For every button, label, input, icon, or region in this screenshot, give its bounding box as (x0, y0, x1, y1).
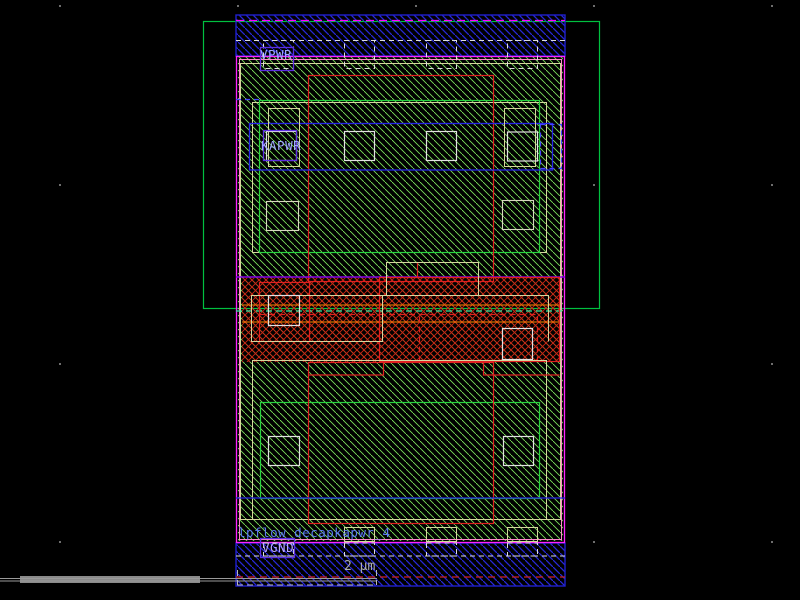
cell-name-label: lpflow_decapkapwr_4 (238, 525, 391, 540)
horizontal-scrollbar-thumb[interactable] (20, 576, 200, 583)
kapwr-label: KAPWR (261, 138, 301, 153)
scale-label: 2 µm (344, 559, 375, 574)
poly-crosshatch-band (242, 278, 559, 362)
vpwr-label: VPWR (260, 47, 292, 62)
vgnd-label: VGND (262, 540, 294, 555)
layout-canvas[interactable]: VPWR KAPWR lpflow_decapkapwr_4 VGND (0, 0, 800, 600)
